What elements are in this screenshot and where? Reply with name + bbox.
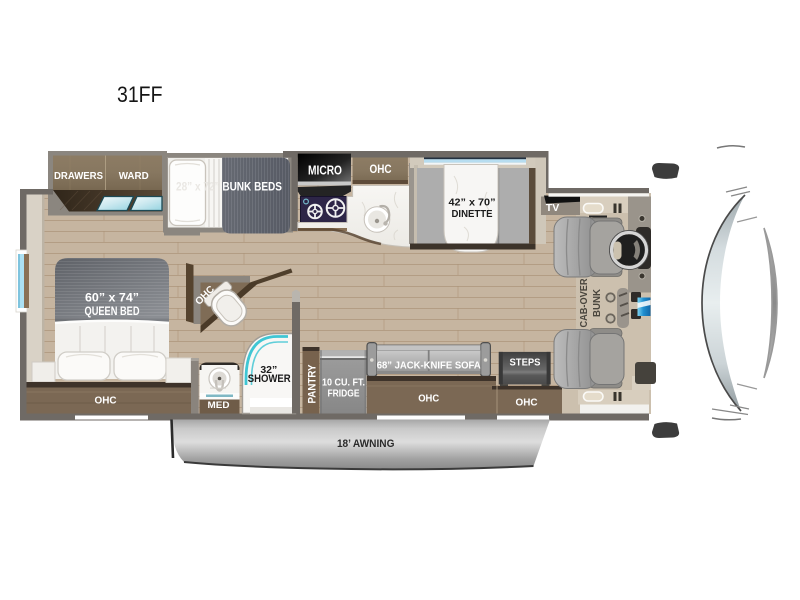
svg-text:42” x 70”: 42” x 70” <box>449 197 496 208</box>
svg-text:68” JACK-KNIFE SOFA: 68” JACK-KNIFE SOFA <box>377 359 481 371</box>
svg-text:DINETTE: DINETTE <box>452 209 493 220</box>
svg-text:MICRO: MICRO <box>308 164 342 178</box>
svg-text:31FF: 31FF <box>117 82 163 107</box>
svg-text:BUNK: BUNK <box>591 289 603 317</box>
svg-text:QUEEN BED: QUEEN BED <box>85 304 140 318</box>
svg-text:28” x 72” BUNK BEDS: 28” x 72” BUNK BEDS <box>176 180 282 194</box>
svg-text:OHC: OHC <box>418 393 439 405</box>
svg-text:OHC: OHC <box>95 395 117 407</box>
svg-text:CAB-OVER: CAB-OVER <box>578 278 590 327</box>
svg-text:18’ AWNING: 18’ AWNING <box>337 438 395 450</box>
svg-text:FRIDGE: FRIDGE <box>328 389 360 400</box>
svg-text:OHC: OHC <box>370 162 392 176</box>
svg-text:OHC: OHC <box>516 398 538 409</box>
svg-text:STEPS: STEPS <box>510 358 541 369</box>
svg-text:TV: TV <box>546 202 559 214</box>
svg-text:60” x 74”: 60” x 74” <box>85 291 139 305</box>
svg-text:SHOWER: SHOWER <box>248 373 291 385</box>
svg-text:DRAWERS: DRAWERS <box>54 170 103 182</box>
svg-text:WARD: WARD <box>119 170 149 182</box>
svg-text:PANTRY: PANTRY <box>307 364 319 404</box>
svg-text:10 CU. FT.: 10 CU. FT. <box>322 378 365 389</box>
svg-text:MED: MED <box>208 400 230 411</box>
